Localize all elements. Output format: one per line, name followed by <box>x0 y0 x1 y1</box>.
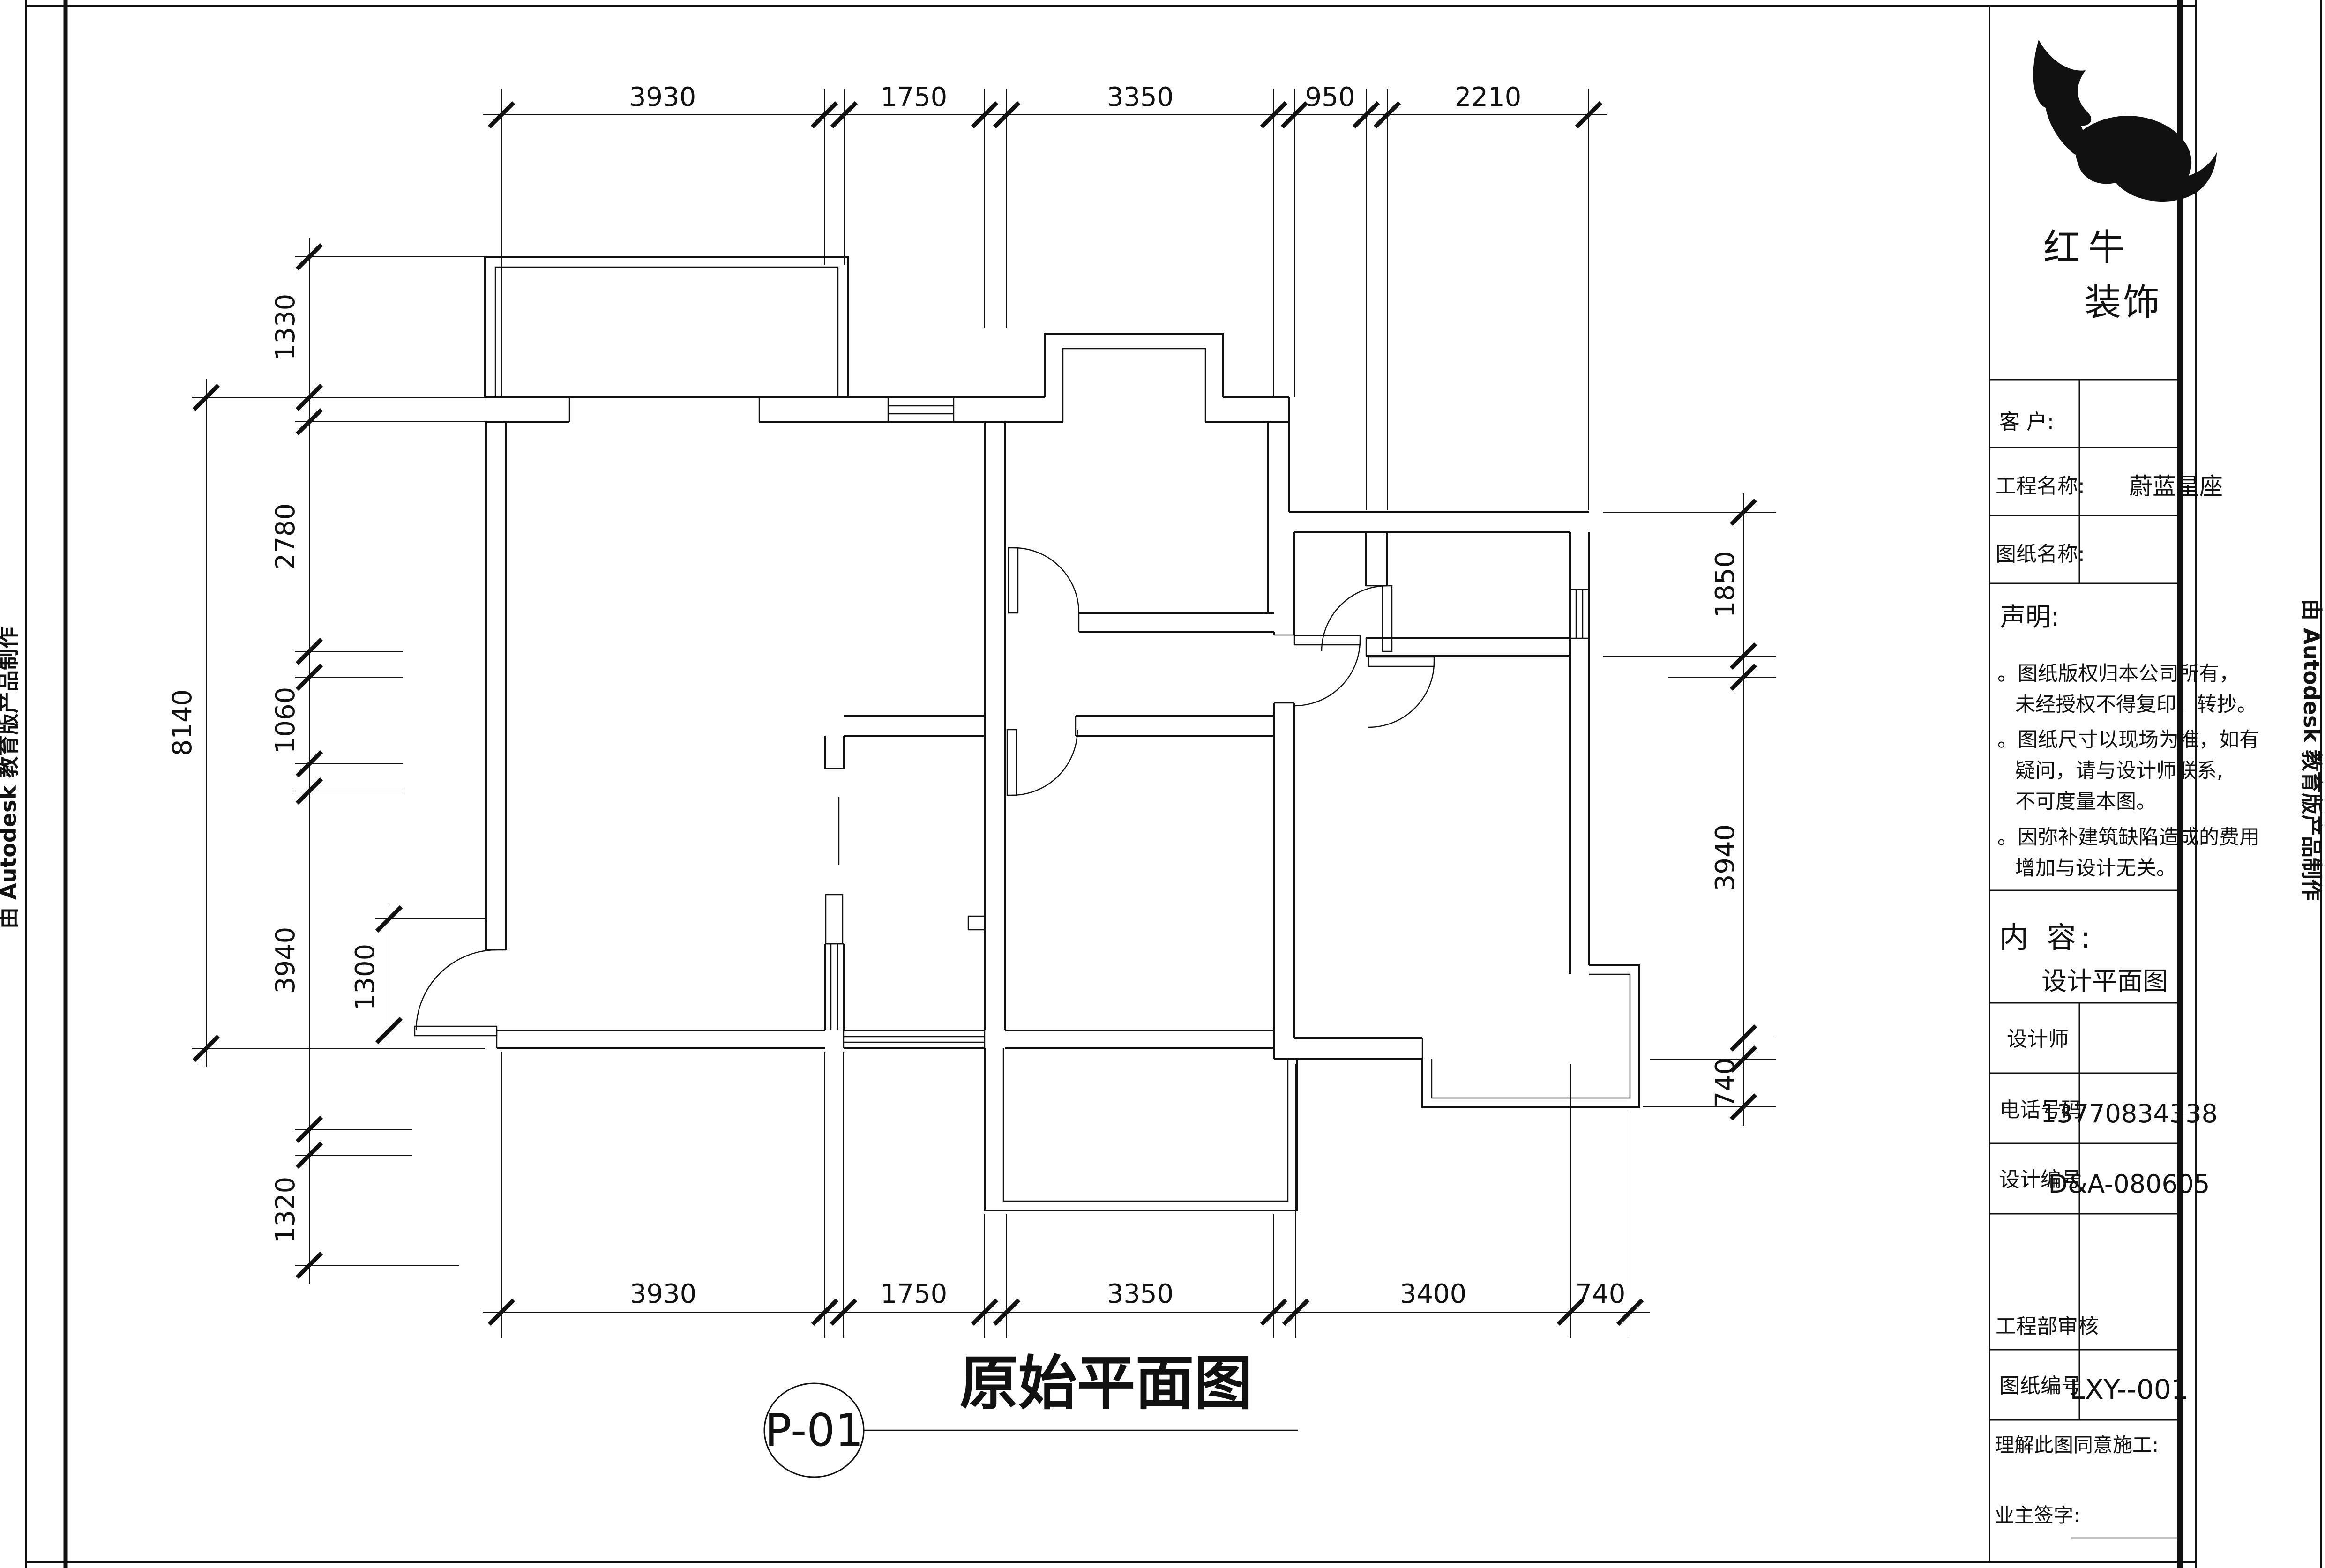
statement-line: 。因弥补建筑缺陷造成的费用 <box>1997 826 2259 849</box>
hall-bottom-wall <box>844 716 1274 736</box>
door-bedroom <box>1009 548 1079 613</box>
row-value-phone: 13770834338 <box>2041 1099 2218 1128</box>
drawing-title: 原始平面图 <box>960 1350 1253 1418</box>
dim-label: 3940 <box>270 927 301 994</box>
row-value-sheetno: LXY--001 <box>2070 1374 2188 1405</box>
right-middle-walls <box>1366 532 1570 656</box>
dim-label: 740 <box>1576 1279 1626 1309</box>
dim-label: 1060 <box>270 687 301 754</box>
statement-line: 增加与设计无关。 <box>2015 857 2176 880</box>
footer-signature: 业主签字: <box>1995 1504 2080 1527</box>
top-wall <box>485 397 1005 422</box>
central-wall <box>968 422 1005 1030</box>
statement-line: 未经授权不得复印、转抄。 <box>2015 693 2257 717</box>
dim-label: 8140 <box>167 689 198 756</box>
partition-sliding <box>825 736 844 1030</box>
edge-note-right: 由 Autodesk 教育版产品制作 <box>2299 599 2324 901</box>
dim-label: 3930 <box>630 1279 697 1309</box>
door-bath <box>1368 657 1434 727</box>
hall-right-wall <box>1274 532 1294 1059</box>
right-wall <box>1570 532 1589 974</box>
cad-sheet: 由 Autodesk 教育版产品制作 由 Autodesk 教育版产品制作 <box>0 0 2325 1568</box>
lower-right-wall <box>1274 1038 1422 1059</box>
statement-heading: 声明: <box>2000 602 2059 632</box>
window-right <box>1570 590 1589 638</box>
bay-window <box>1005 334 1289 422</box>
terrace-bottom-right <box>1422 965 1639 1107</box>
title-block: 红牛 装饰 客 户: 工程名称: 蔚蓝星座 图纸名称: 声明: 。图纸版权归本公… <box>1989 40 2259 1538</box>
lower-balcony <box>985 1048 1297 1210</box>
door-right-room <box>1294 635 1360 706</box>
dim-label: 1750 <box>881 82 948 112</box>
drawing-code: P-01 <box>765 1405 863 1456</box>
window-bottom <box>844 1030 985 1048</box>
dim-label: 3940 <box>1710 824 1741 891</box>
row-label-sheetname: 图纸名称: <box>1996 542 2085 566</box>
content-value: 设计平面图 <box>2041 966 2168 996</box>
sheet-borders <box>26 0 2321 1568</box>
balcony-top-left <box>485 257 848 397</box>
dim-label: 2780 <box>270 503 301 570</box>
left-wall <box>486 422 506 950</box>
row-label-review: 工程部审核 <box>1996 1314 2099 1338</box>
bottom-wall <box>497 1030 1274 1048</box>
brand-name-2: 装饰 <box>2085 282 2161 324</box>
dim-label: 2210 <box>1455 82 1522 112</box>
drawing-label: P-01 原始平面图 <box>764 1350 1298 1477</box>
row-value-project: 蔚蓝星座 <box>2129 473 2223 500</box>
dim-label: 3350 <box>1107 82 1174 112</box>
statement-line: 不可度量本图。 <box>2015 790 2156 814</box>
dim-label: 1330 <box>270 294 301 361</box>
dim-top: 3930 1750 3350 950 2210 <box>483 82 1607 510</box>
footer-agree: 理解此图同意施工: <box>1995 1434 2159 1456</box>
bedroom-bottom-wall <box>1079 613 1274 632</box>
dim-label: 3400 <box>1400 1279 1467 1309</box>
brand-logo <box>2033 40 2217 202</box>
dim-label: 1750 <box>881 1279 948 1309</box>
dim-label: 740 <box>1710 1058 1741 1108</box>
statement-line: 疑问，请与设计师联系, <box>2015 759 2223 783</box>
dim-label: 3930 <box>629 82 696 112</box>
dim-bottom: 3930 1750 3350 3400 740 <box>483 1052 1650 1338</box>
dim-label: 1850 <box>1710 551 1741 618</box>
dim-label: 3350 <box>1107 1279 1174 1309</box>
content-heading: 内 容: <box>1999 920 2095 955</box>
dim-right: 1850 3940 740 <box>1603 493 1776 1126</box>
row-label-project: 工程名称: <box>1996 474 2085 498</box>
dim-label: 950 <box>1305 82 1355 112</box>
floor-plan <box>415 257 1639 1210</box>
row-value-designno: D&A-080605 <box>2048 1169 2210 1199</box>
upper-right-walls <box>1268 397 1589 613</box>
door-entry <box>415 950 497 1036</box>
statement: 声明: 。图纸版权归本公司所有， 未经授权不得复印、转抄。 。图纸尺寸以现场为准… <box>1997 602 2259 880</box>
statement-line: 。图纸尺寸以现场为准，如有 <box>1997 728 2259 752</box>
door-top-right-room <box>1322 586 1392 651</box>
dim-label: 1300 <box>350 944 381 1011</box>
dim-label: 1320 <box>270 1177 301 1244</box>
brand-name-1: 红牛 <box>2043 227 2133 269</box>
row-label-client: 客 户: <box>1999 410 2054 434</box>
window-top-left <box>888 397 954 422</box>
edge-note-left: 由 Autodesk 教育版产品制作 <box>0 627 21 929</box>
dim-left: 8140 1330 2780 1060 3940 1320 1300 <box>167 238 486 1284</box>
row-label-designer: 设计师 <box>2007 1027 2069 1051</box>
statement-line: 。图纸版权归本公司所有， <box>1997 662 2239 686</box>
door-lower-room <box>1007 730 1077 795</box>
